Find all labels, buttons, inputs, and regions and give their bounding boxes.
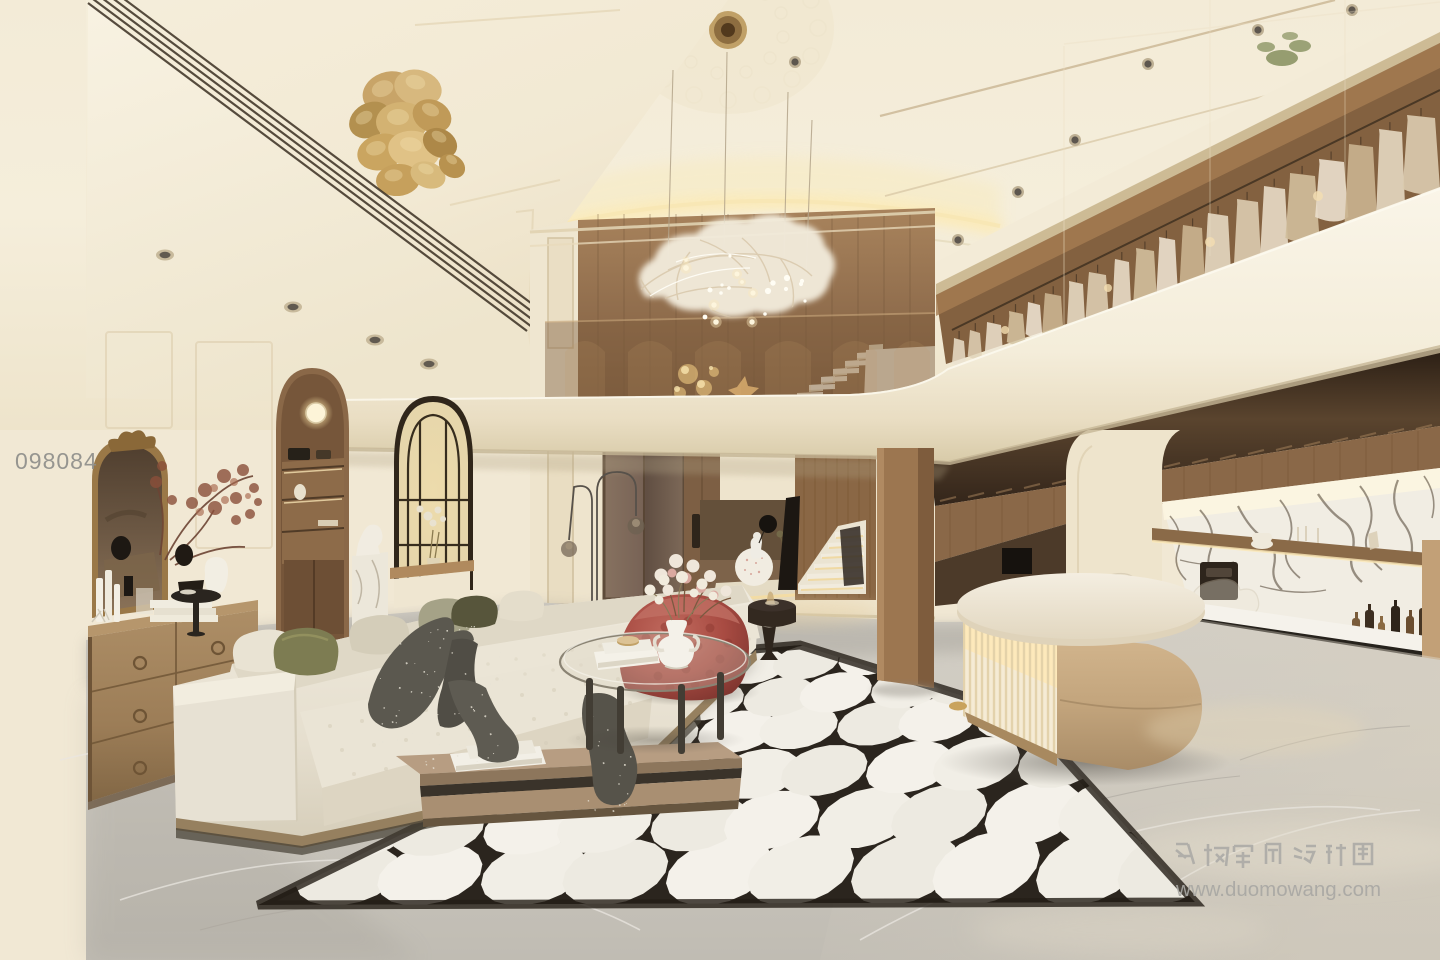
svg-text:098084: 098084 — [15, 448, 98, 474]
svg-text:www.duomowang.com: www.duomowang.com — [1175, 878, 1381, 901]
